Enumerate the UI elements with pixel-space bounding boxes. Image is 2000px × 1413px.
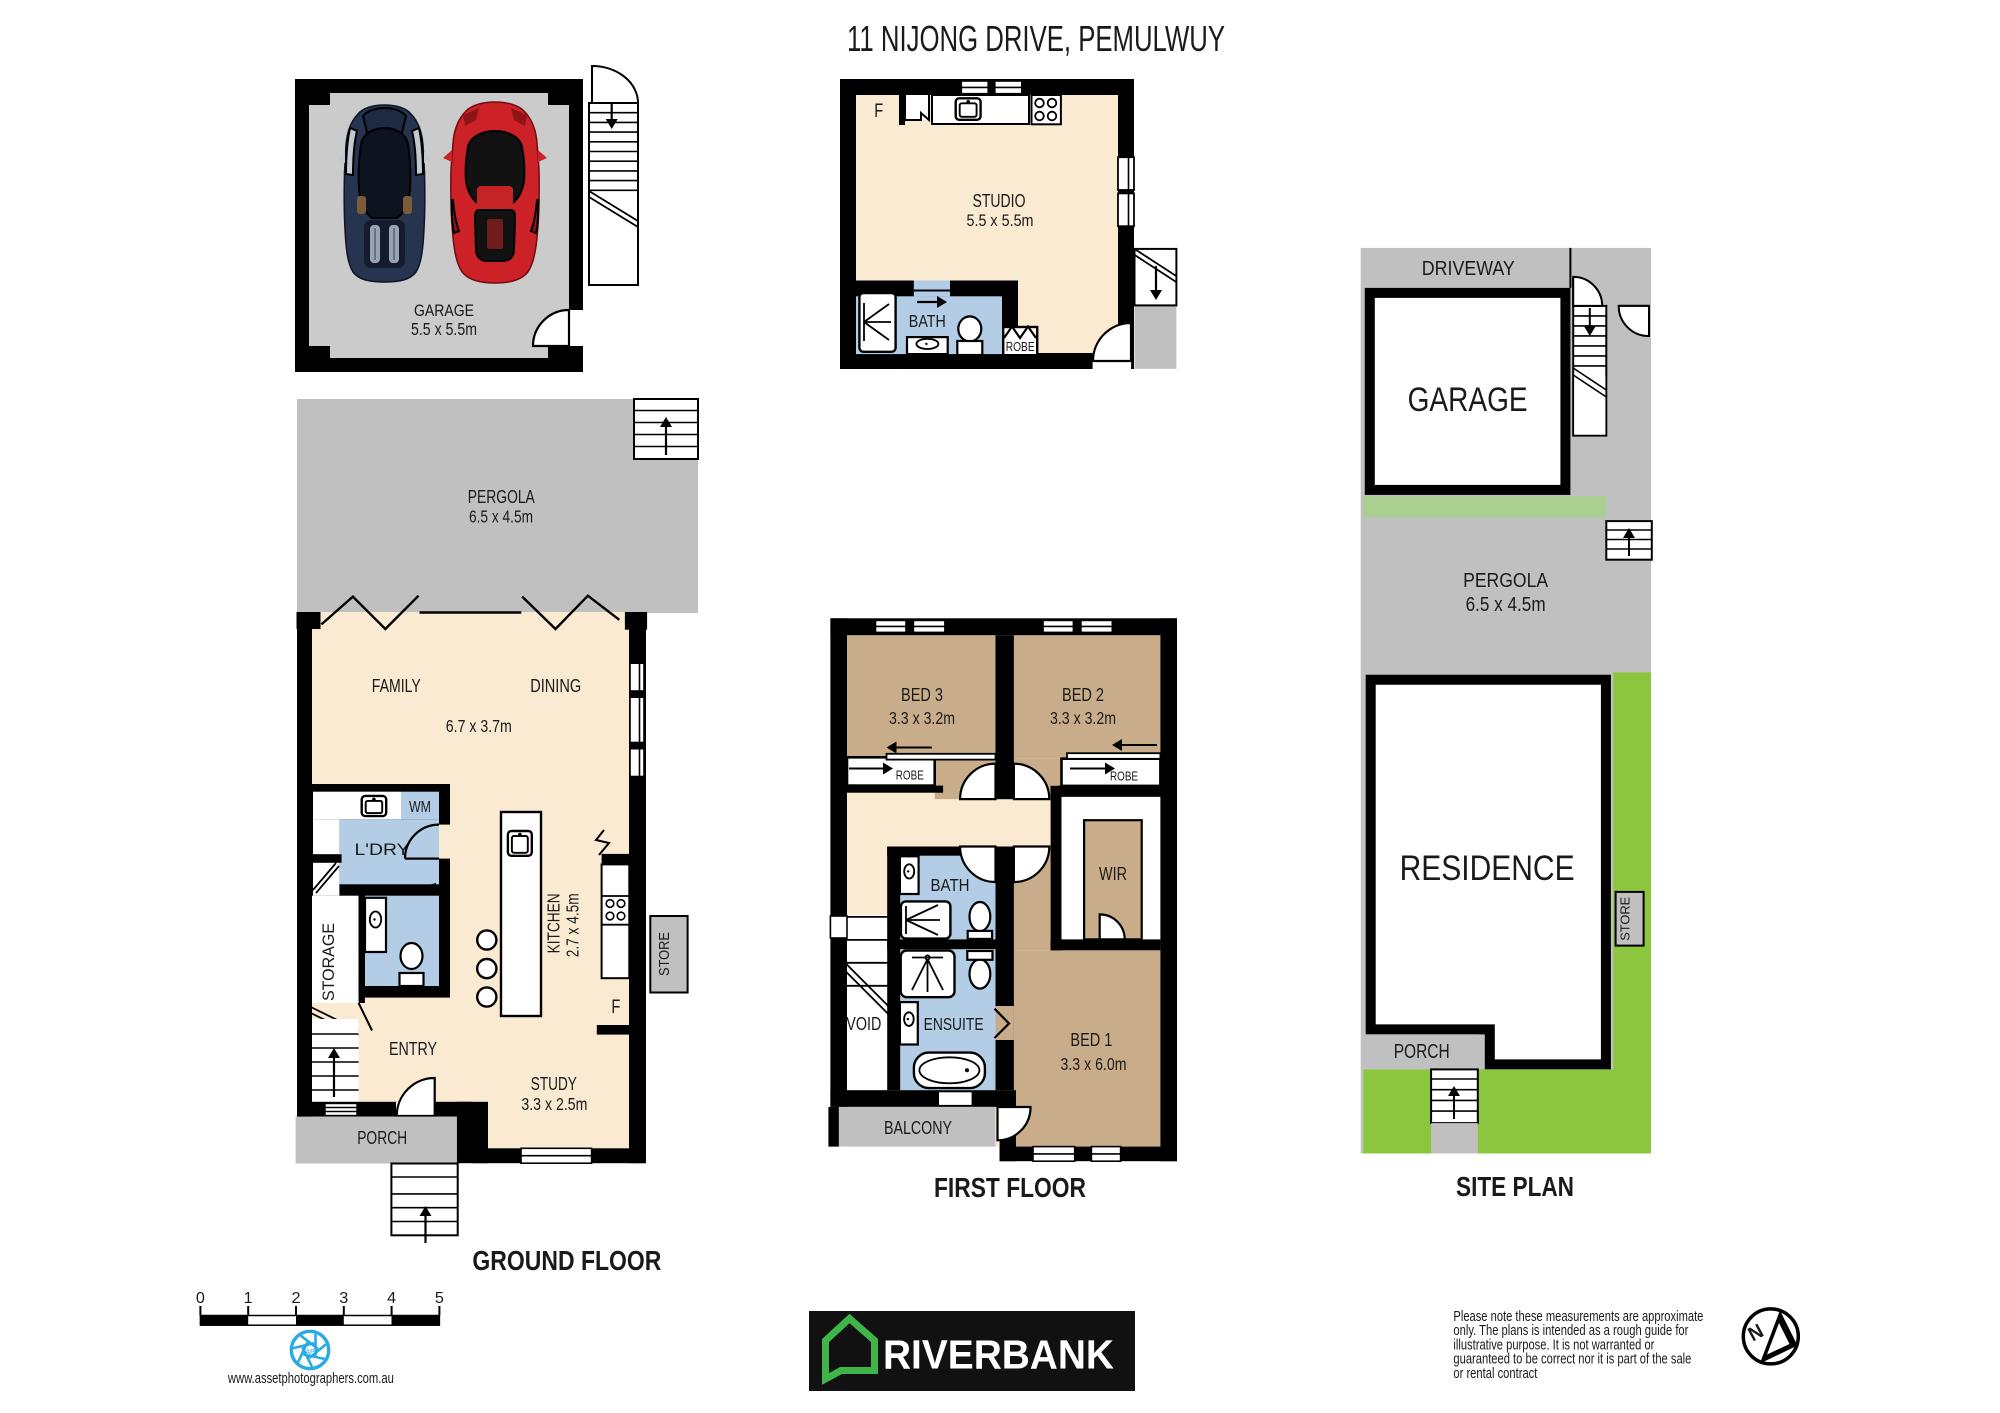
svg-text:L'DRY: L'DRY: [355, 841, 410, 859]
svg-text:RIVERBANK: RIVERBANK: [883, 1332, 1114, 1378]
svg-text:1: 1: [244, 1290, 253, 1307]
svg-text:2.7 x 4.5m: 2.7 x 4.5m: [563, 893, 583, 957]
svg-text:STORAGE: STORAGE: [320, 923, 338, 1001]
svg-text:BATH: BATH: [909, 311, 946, 331]
svg-text:VOID: VOID: [846, 1014, 881, 1034]
svg-text:ROBE: ROBE: [1006, 340, 1035, 354]
svg-text:5.5 x 5.5m: 5.5 x 5.5m: [411, 319, 477, 339]
svg-text:11 NIJONG DRIVE, PEMULWUY: 11 NIJONG DRIVE, PEMULWUY: [847, 18, 1225, 59]
svg-text:KITCHEN: KITCHEN: [543, 893, 563, 953]
svg-text:F: F: [611, 997, 620, 1018]
svg-text:STORE: STORE: [656, 932, 673, 976]
svg-text:GARAGE: GARAGE: [1408, 381, 1528, 419]
svg-text:GARAGE: GARAGE: [414, 301, 474, 320]
svg-text:WM: WM: [409, 799, 431, 816]
svg-text:ENSUITE: ENSUITE: [924, 1014, 984, 1034]
svg-text:DRIVEWAY: DRIVEWAY: [1422, 258, 1515, 280]
svg-text:2: 2: [292, 1290, 301, 1307]
svg-text:AP: AP: [306, 1349, 315, 1356]
svg-text:5: 5: [435, 1290, 444, 1307]
svg-text:ROBE: ROBE: [896, 768, 924, 783]
svg-text:6.5 x 4.5m: 6.5 x 4.5m: [469, 507, 533, 527]
svg-text:0: 0: [196, 1290, 205, 1307]
svg-text:BED 2: BED 2: [1062, 685, 1104, 705]
svg-text:6.5 x 4.5m: 6.5 x 4.5m: [1466, 594, 1546, 616]
svg-text:PERGOLA: PERGOLA: [1463, 570, 1549, 592]
svg-text:BED 1: BED 1: [1070, 1030, 1112, 1050]
svg-text:6.7 x 3.7m: 6.7 x 3.7m: [446, 716, 512, 736]
svg-text:5.5 x 5.5m: 5.5 x 5.5m: [967, 211, 1034, 230]
svg-text:F: F: [874, 101, 883, 122]
svg-text:www.assetphotographers.com.au: www.assetphotographers.com.au: [227, 1370, 394, 1387]
svg-text:3.3 x 6.0m: 3.3 x 6.0m: [1061, 1054, 1127, 1074]
svg-text:PERGOLA: PERGOLA: [468, 487, 535, 507]
svg-text:STUDIO: STUDIO: [973, 191, 1026, 211]
svg-text:3: 3: [339, 1290, 348, 1307]
svg-text:BATH: BATH: [931, 875, 970, 895]
svg-text:3.3 x 3.2m: 3.3 x 3.2m: [889, 708, 955, 728]
svg-text:BALCONY: BALCONY: [884, 1118, 952, 1138]
svg-text:BED 3: BED 3: [901, 685, 943, 705]
svg-text:GROUND FLOOR: GROUND FLOOR: [472, 1245, 661, 1276]
svg-text:RESIDENCE: RESIDENCE: [1400, 849, 1575, 888]
svg-text:SITE PLAN: SITE PLAN: [1456, 1171, 1574, 1202]
svg-text:3.3 x 2.5m: 3.3 x 2.5m: [521, 1094, 587, 1114]
svg-text:3.3 x 3.2m: 3.3 x 3.2m: [1050, 708, 1116, 728]
svg-text:WIR: WIR: [1099, 864, 1127, 884]
svg-text:DINING: DINING: [530, 676, 581, 696]
svg-text:or rental contract: or rental contract: [1453, 1366, 1537, 1382]
svg-text:FAMILY: FAMILY: [372, 676, 421, 696]
svg-text:ENTRY: ENTRY: [389, 1039, 437, 1059]
svg-text:ROBE: ROBE: [1110, 769, 1138, 784]
svg-text:PORCH: PORCH: [357, 1128, 407, 1148]
svg-text:STUDY: STUDY: [531, 1074, 577, 1094]
svg-text:4: 4: [387, 1290, 396, 1307]
svg-text:STORE: STORE: [1618, 896, 1633, 940]
svg-text:PORCH: PORCH: [1394, 1041, 1450, 1063]
svg-text:FIRST FLOOR: FIRST FLOOR: [934, 1172, 1086, 1203]
